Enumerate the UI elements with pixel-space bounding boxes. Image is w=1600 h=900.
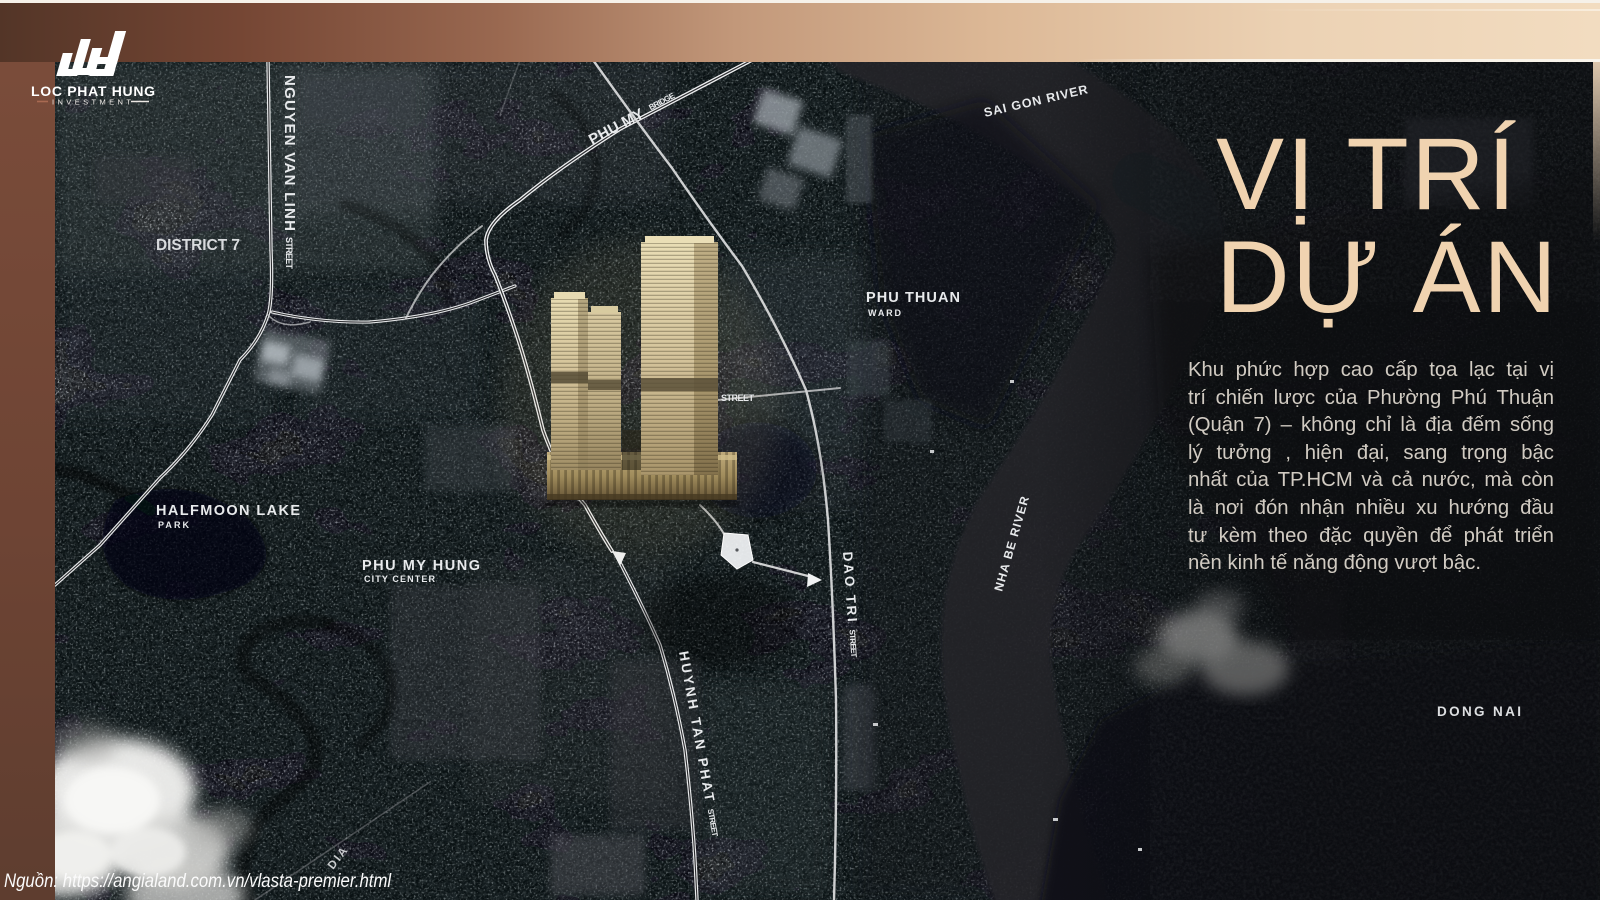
svg-text:DONG NAI: DONG NAI	[1437, 704, 1521, 719]
svg-text:INVESTMENT: INVESTMENT	[52, 98, 134, 107]
svg-text:CITY CENTER: CITY CENTER	[364, 574, 436, 584]
svg-text:STREET: STREET	[721, 393, 755, 403]
svg-text:PARK: PARK	[158, 520, 190, 530]
svg-text:DISTRICT 7: DISTRICT 7	[156, 237, 240, 254]
svg-text:HALFMOON LAKE: HALFMOON LAKE	[156, 503, 300, 519]
svg-text:PHU THUAN: PHU THUAN	[866, 290, 960, 306]
svg-text:NGUYEN VAN LINH: NGUYEN VAN LINH	[281, 75, 298, 231]
svg-text:PHU MY HUNG: PHU MY HUNG	[362, 558, 480, 574]
svg-text:STREET: STREET	[284, 237, 294, 270]
